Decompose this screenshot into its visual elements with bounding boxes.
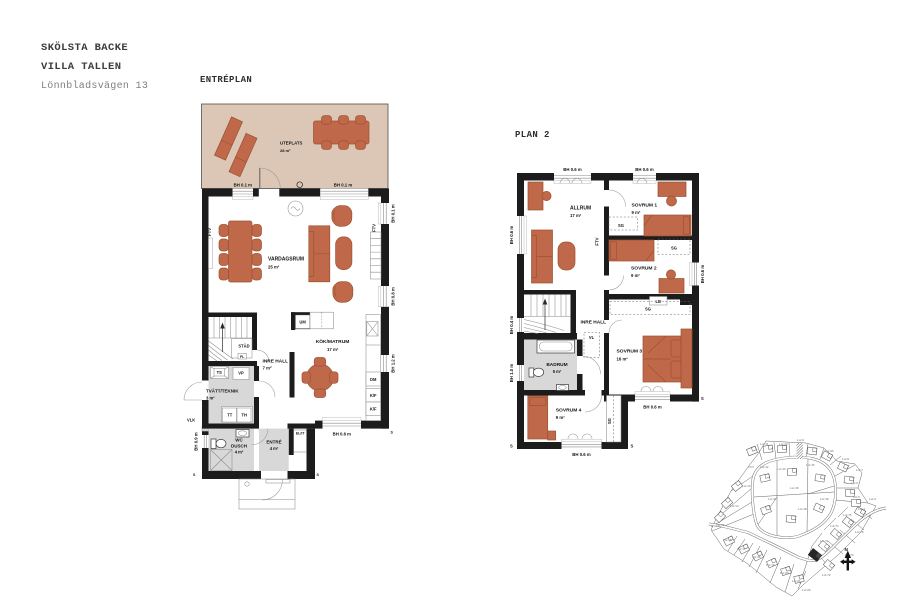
- svg-text:ENTRÉPLAN: ENTRÉPLAN: [200, 74, 252, 85]
- svg-text:3 m²: 3 m²: [206, 396, 215, 401]
- svg-text:Lot 48: Lot 48: [798, 507, 807, 511]
- svg-text:SG: SG: [671, 246, 677, 251]
- svg-text:Lot 7: Lot 7: [856, 468, 863, 472]
- svg-text:Lot 72: Lot 72: [822, 573, 831, 577]
- svg-text:28 m²: 28 m²: [280, 148, 291, 153]
- svg-text:FTV: FTV: [595, 237, 600, 245]
- svg-text:9 m²: 9 m²: [632, 210, 641, 215]
- svg-text:5 m²: 5 m²: [553, 369, 562, 374]
- svg-text:Lot 74: Lot 74: [830, 524, 839, 528]
- svg-text:BH 0.1 m: BH 0.1 m: [391, 204, 396, 223]
- svg-text:SG: SG: [645, 307, 651, 312]
- svg-text:SOVRUM 3: SOVRUM 3: [617, 349, 643, 355]
- svg-text:FTV: FTV: [371, 224, 376, 232]
- svg-text:Lot 5: Lot 5: [853, 495, 860, 499]
- svg-text:BADRUM: BADRUM: [546, 362, 567, 368]
- svg-text:TS: TS: [217, 370, 223, 375]
- svg-text:16 m²: 16 m²: [617, 357, 629, 362]
- svg-text:FTV: FTV: [207, 228, 212, 236]
- svg-text:INRE HALL: INRE HALL: [581, 320, 607, 326]
- svg-text:BH 0.1 m: BH 0.1 m: [234, 183, 253, 188]
- svg-text:Lot 75: Lot 75: [843, 513, 852, 517]
- svg-text:Lot 8: Lot 8: [842, 457, 849, 461]
- svg-text:Lot 90: Lot 90: [825, 449, 834, 453]
- svg-text:Lot 19: Lot 19: [766, 563, 775, 567]
- svg-text:VL: VL: [589, 335, 595, 340]
- svg-text:SOVRUM 2: SOVRUM 2: [631, 266, 657, 272]
- svg-text:7 m²: 7 m²: [263, 366, 273, 371]
- svg-text:S: S: [631, 444, 634, 449]
- svg-text:BH 0.8 m: BH 0.8 m: [391, 287, 396, 306]
- svg-text:9 m²: 9 m²: [556, 415, 565, 420]
- svg-text:BH 1.2 m: BH 1.2 m: [391, 354, 396, 373]
- svg-text:Lot 49: Lot 49: [820, 497, 829, 501]
- svg-text:SKÖLSTA BACKE: SKÖLSTA BACKE: [41, 41, 128, 54]
- svg-text:VARDAGSRUM: VARDAGSRUM: [268, 257, 304, 263]
- svg-text:PLAN 2: PLAN 2: [515, 130, 550, 140]
- svg-text:VP: VP: [238, 371, 244, 376]
- svg-text:BH 1.0 m: BH 1.0 m: [509, 364, 514, 383]
- svg-text:INRE HALL: INRE HALL: [263, 359, 289, 365]
- svg-text:SOVRUM 1: SOVRUM 1: [632, 203, 658, 209]
- svg-text:4 m²: 4 m²: [270, 446, 279, 451]
- svg-text:Lot 15: Lot 15: [716, 523, 725, 527]
- svg-text:Lot 17: Lot 17: [737, 547, 746, 551]
- svg-text:ALLRUM: ALLRUM: [570, 206, 591, 212]
- svg-text:Lot 4: Lot 4: [858, 507, 865, 511]
- svg-text:Lot 20: Lot 20: [780, 571, 789, 575]
- svg-text:17 m²: 17 m²: [327, 347, 339, 352]
- svg-text:Lot 76: Lot 76: [855, 530, 864, 534]
- svg-text:EL/IT: EL/IT: [296, 431, 305, 435]
- svg-text:BH 0.4 m: BH 0.4 m: [509, 316, 514, 335]
- svg-text:Lot 3: Lot 3: [869, 497, 876, 501]
- svg-text:WC: WC: [235, 438, 243, 443]
- svg-text:DM: DM: [370, 377, 377, 382]
- svg-text:SOVRUM 4: SOVRUM 4: [556, 408, 582, 414]
- svg-text:Lot 22: Lot 22: [802, 588, 811, 592]
- svg-text:Lot 71: Lot 71: [820, 539, 829, 543]
- svg-text:K/F: K/F: [370, 407, 377, 412]
- svg-text:Lot 45: Lot 45: [806, 463, 815, 467]
- svg-text:BH 0.9 m: BH 0.9 m: [194, 432, 199, 451]
- svg-text:BH 0.6 m: BH 0.6 m: [563, 167, 582, 172]
- svg-text:Lot 12: Lot 12: [760, 465, 769, 469]
- svg-text:Lot 18: Lot 18: [752, 555, 761, 559]
- svg-text:TH: TH: [241, 413, 247, 418]
- svg-text:Lot 21: Lot 21: [792, 579, 801, 583]
- svg-text:DUSCH: DUSCH: [231, 444, 247, 449]
- svg-text:STÄD: STÄD: [238, 344, 249, 349]
- svg-text:K/F: K/F: [370, 393, 377, 398]
- svg-text:Lot 16: Lot 16: [723, 538, 732, 542]
- svg-text:Lot 46: Lot 46: [790, 486, 799, 490]
- svg-text:Lot 44: Lot 44: [777, 467, 786, 471]
- svg-text:Lot 10: Lot 10: [779, 442, 788, 446]
- svg-text:9 m²: 9 m²: [631, 273, 640, 278]
- svg-text:BH 0.6 m: BH 0.6 m: [509, 226, 514, 245]
- svg-text:S: S: [510, 444, 513, 449]
- svg-text:BH 0.6 m: BH 0.6 m: [643, 405, 662, 410]
- svg-text:Lot 11: Lot 11: [760, 442, 769, 446]
- svg-text:SG: SG: [618, 223, 624, 228]
- svg-text:Lot 13: Lot 13: [742, 484, 751, 488]
- svg-text:TVÄTT/TEKNIK: TVÄTT/TEKNIK: [206, 388, 239, 394]
- svg-text:Lönnbladsvägen 13: Lönnbladsvägen 13: [41, 80, 148, 92]
- svg-text:BH 0.6 m: BH 0.6 m: [572, 452, 591, 457]
- svg-text:BH 0.6 m: BH 0.6 m: [635, 167, 654, 172]
- svg-text:VILLA TALLEN: VILLA TALLEN: [41, 61, 121, 73]
- svg-text:BH 0.6 m: BH 0.6 m: [700, 265, 705, 284]
- svg-text:ENTRÉ: ENTRÉ: [266, 438, 281, 445]
- svg-text:17 m²: 17 m²: [570, 213, 582, 218]
- svg-text:25 m²: 25 m²: [268, 265, 280, 270]
- svg-text:Lot 9: Lot 9: [797, 438, 804, 442]
- svg-text:BH 0.6 m: BH 0.6 m: [333, 432, 352, 437]
- svg-text:SG: SG: [607, 418, 612, 424]
- svg-text:BH 0.1 m: BH 0.1 m: [334, 183, 353, 188]
- svg-text:S: S: [701, 396, 704, 401]
- svg-text:Lot 14: Lot 14: [730, 504, 739, 508]
- svg-text:VLK: VLK: [187, 418, 195, 423]
- svg-text:UM: UM: [299, 320, 306, 325]
- svg-text:KÖK/MATRUM: KÖK/MATRUM: [316, 338, 350, 345]
- svg-text:UTEPLATS: UTEPLATS: [280, 141, 302, 146]
- svg-text:TT: TT: [227, 413, 233, 418]
- svg-text:4 m²: 4 m²: [235, 450, 244, 455]
- svg-text:Lot 6: Lot 6: [851, 481, 858, 485]
- svg-text:Lot 47: Lot 47: [768, 497, 777, 501]
